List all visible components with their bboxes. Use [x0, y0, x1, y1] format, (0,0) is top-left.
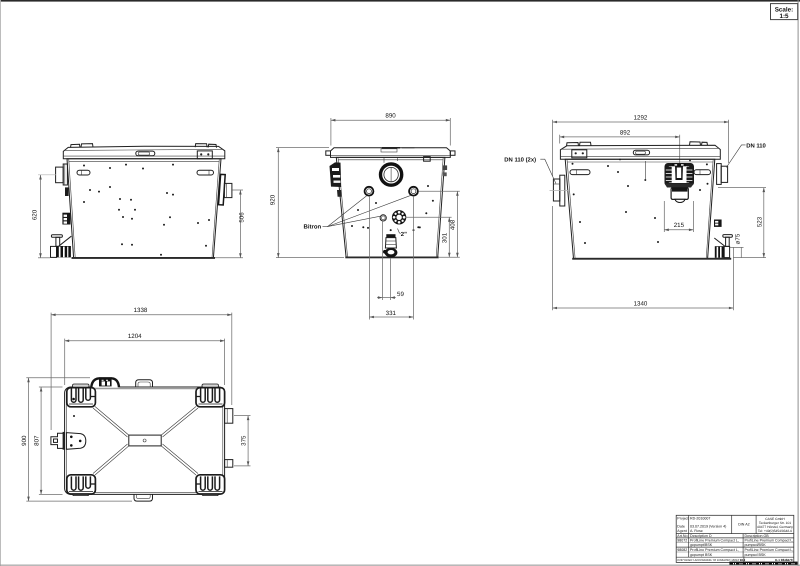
svg-text:408: 408 — [450, 219, 457, 230]
svg-text:Tel: +49(0)5454/9348-0: Tel: +49(0)5454/9348-0 — [758, 529, 792, 533]
svg-text:RD-2010007: RD-2010007 — [690, 516, 710, 520]
svg-text:59: 59 — [397, 291, 404, 298]
svg-text:1340: 1340 — [634, 300, 648, 307]
svg-text:pumped/BSK: pumped/BSK — [745, 543, 767, 547]
svg-text:ProfiLine Premium Compact L,: ProfiLine Premium Compact L, — [745, 539, 794, 543]
svg-text:1292: 1292 — [634, 114, 648, 121]
svg-text:gepumpt/BSK: gepumpt/BSK — [690, 543, 713, 547]
svg-text:98082: 98082 — [677, 548, 687, 552]
svg-text:523: 523 — [756, 216, 763, 227]
svg-text:215: 215 — [674, 222, 685, 229]
svg-text:ProfiLine Premium Compact L,: ProfiLine Premium Compact L, — [745, 548, 794, 552]
svg-text:pumped BSK: pumped BSK — [745, 553, 767, 557]
svg-text:Art.No.: Art.No. — [677, 534, 688, 538]
svg-text:COPYRIGHT ACCORDING TO DIN34/I: COPYRIGHT ACCORDING TO DIN34/ISO 16016 9… — [677, 558, 745, 562]
svg-text:301: 301 — [442, 232, 449, 243]
svg-text:Description D: Description D — [690, 534, 712, 538]
svg-text:D-1 9848479: D-1 9848479 — [775, 558, 793, 562]
svg-text:Project: Project — [677, 516, 688, 520]
svg-text:807: 807 — [34, 435, 41, 446]
svg-text:03.07.2019 (Version 4): 03.07.2019 (Version 4) — [690, 525, 726, 529]
svg-text:Bitron: Bitron — [304, 224, 322, 231]
svg-text:⌀75: ⌀75 — [735, 233, 742, 244]
svg-text:ProfiLine Premium Compact L,: ProfiLine Premium Compact L, — [690, 548, 739, 552]
svg-text:A. Rose: A. Rose — [690, 529, 703, 533]
svg-text:DN 110: DN 110 — [746, 142, 766, 149]
svg-text:Description GB: Description GB — [745, 534, 770, 538]
svg-text:506: 506 — [239, 212, 246, 223]
svg-text:890: 890 — [385, 113, 396, 120]
svg-text:1338: 1338 — [134, 307, 148, 314]
svg-text:Date: Date — [677, 525, 685, 529]
svg-text:Agent: Agent — [677, 529, 686, 533]
svg-text:1204: 1204 — [128, 333, 142, 340]
svg-text:620: 620 — [32, 209, 39, 220]
svg-text:920: 920 — [269, 194, 276, 205]
svg-text:2": 2" — [401, 231, 407, 238]
svg-text:900: 900 — [21, 435, 28, 446]
svg-text:DIN A2: DIN A2 — [738, 523, 749, 527]
svg-text:98072: 98072 — [677, 539, 687, 543]
svg-text:892: 892 — [620, 129, 631, 136]
svg-text:gepumpt BSK: gepumpt BSK — [690, 553, 713, 557]
svg-text:1:5: 1:5 — [779, 13, 789, 20]
svg-text:331: 331 — [386, 310, 397, 317]
svg-text:375: 375 — [241, 435, 248, 446]
svg-text:DN 110 (2x): DN 110 (2x) — [504, 156, 536, 163]
svg-text:ProfiLine Premium Compact L,: ProfiLine Premium Compact L, — [690, 539, 739, 543]
